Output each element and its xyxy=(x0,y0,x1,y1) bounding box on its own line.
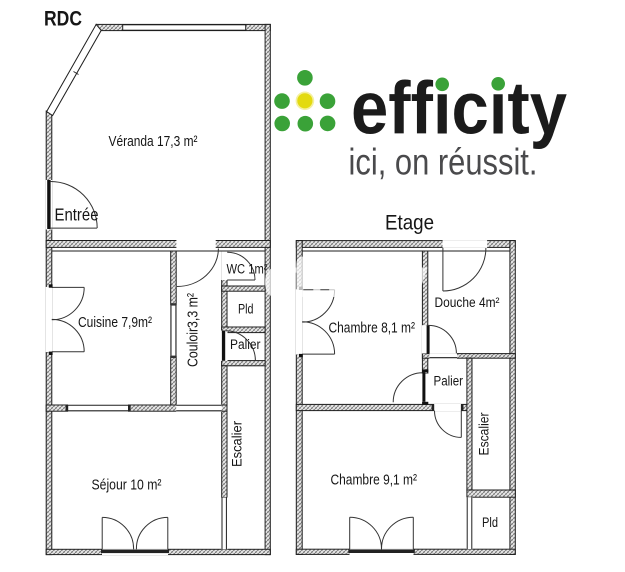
svg-text:Cuisine 7,9m²: Cuisine 7,9m² xyxy=(78,314,152,331)
svg-text:efficity: efficity xyxy=(263,246,428,309)
svg-text:Douche 4m²: Douche 4m² xyxy=(435,294,500,310)
svg-text:effıcıty: effıcıty xyxy=(351,67,567,150)
svg-text:Escalier: Escalier xyxy=(477,412,492,455)
svg-text:Chambre 9,1 m²: Chambre 9,1 m² xyxy=(331,472,418,489)
svg-text:Véranda 17,3 m²: Véranda 17,3 m² xyxy=(109,133,198,150)
svg-text:Palier: Palier xyxy=(434,374,464,389)
svg-text:ici, on réussit.: ici, on réussit. xyxy=(349,142,538,183)
svg-text:Séjour 10 m²: Séjour 10 m² xyxy=(92,477,162,494)
svg-text:WC 1m²: WC 1m² xyxy=(227,262,268,277)
svg-text:Chambre 8,1 m²: Chambre 8,1 m² xyxy=(329,320,416,337)
svg-text:Couloir3,3 m²: Couloir3,3 m² xyxy=(185,293,202,367)
svg-text:Palier: Palier xyxy=(230,337,261,352)
svg-text:Escalier: Escalier xyxy=(230,421,245,467)
svg-text:Pld: Pld xyxy=(482,515,498,530)
svg-text:Entrée: Entrée xyxy=(55,205,99,225)
svg-text:Pld: Pld xyxy=(238,302,254,317)
svg-text:RDC: RDC xyxy=(44,7,82,31)
svg-text:Etage: Etage xyxy=(385,211,434,235)
